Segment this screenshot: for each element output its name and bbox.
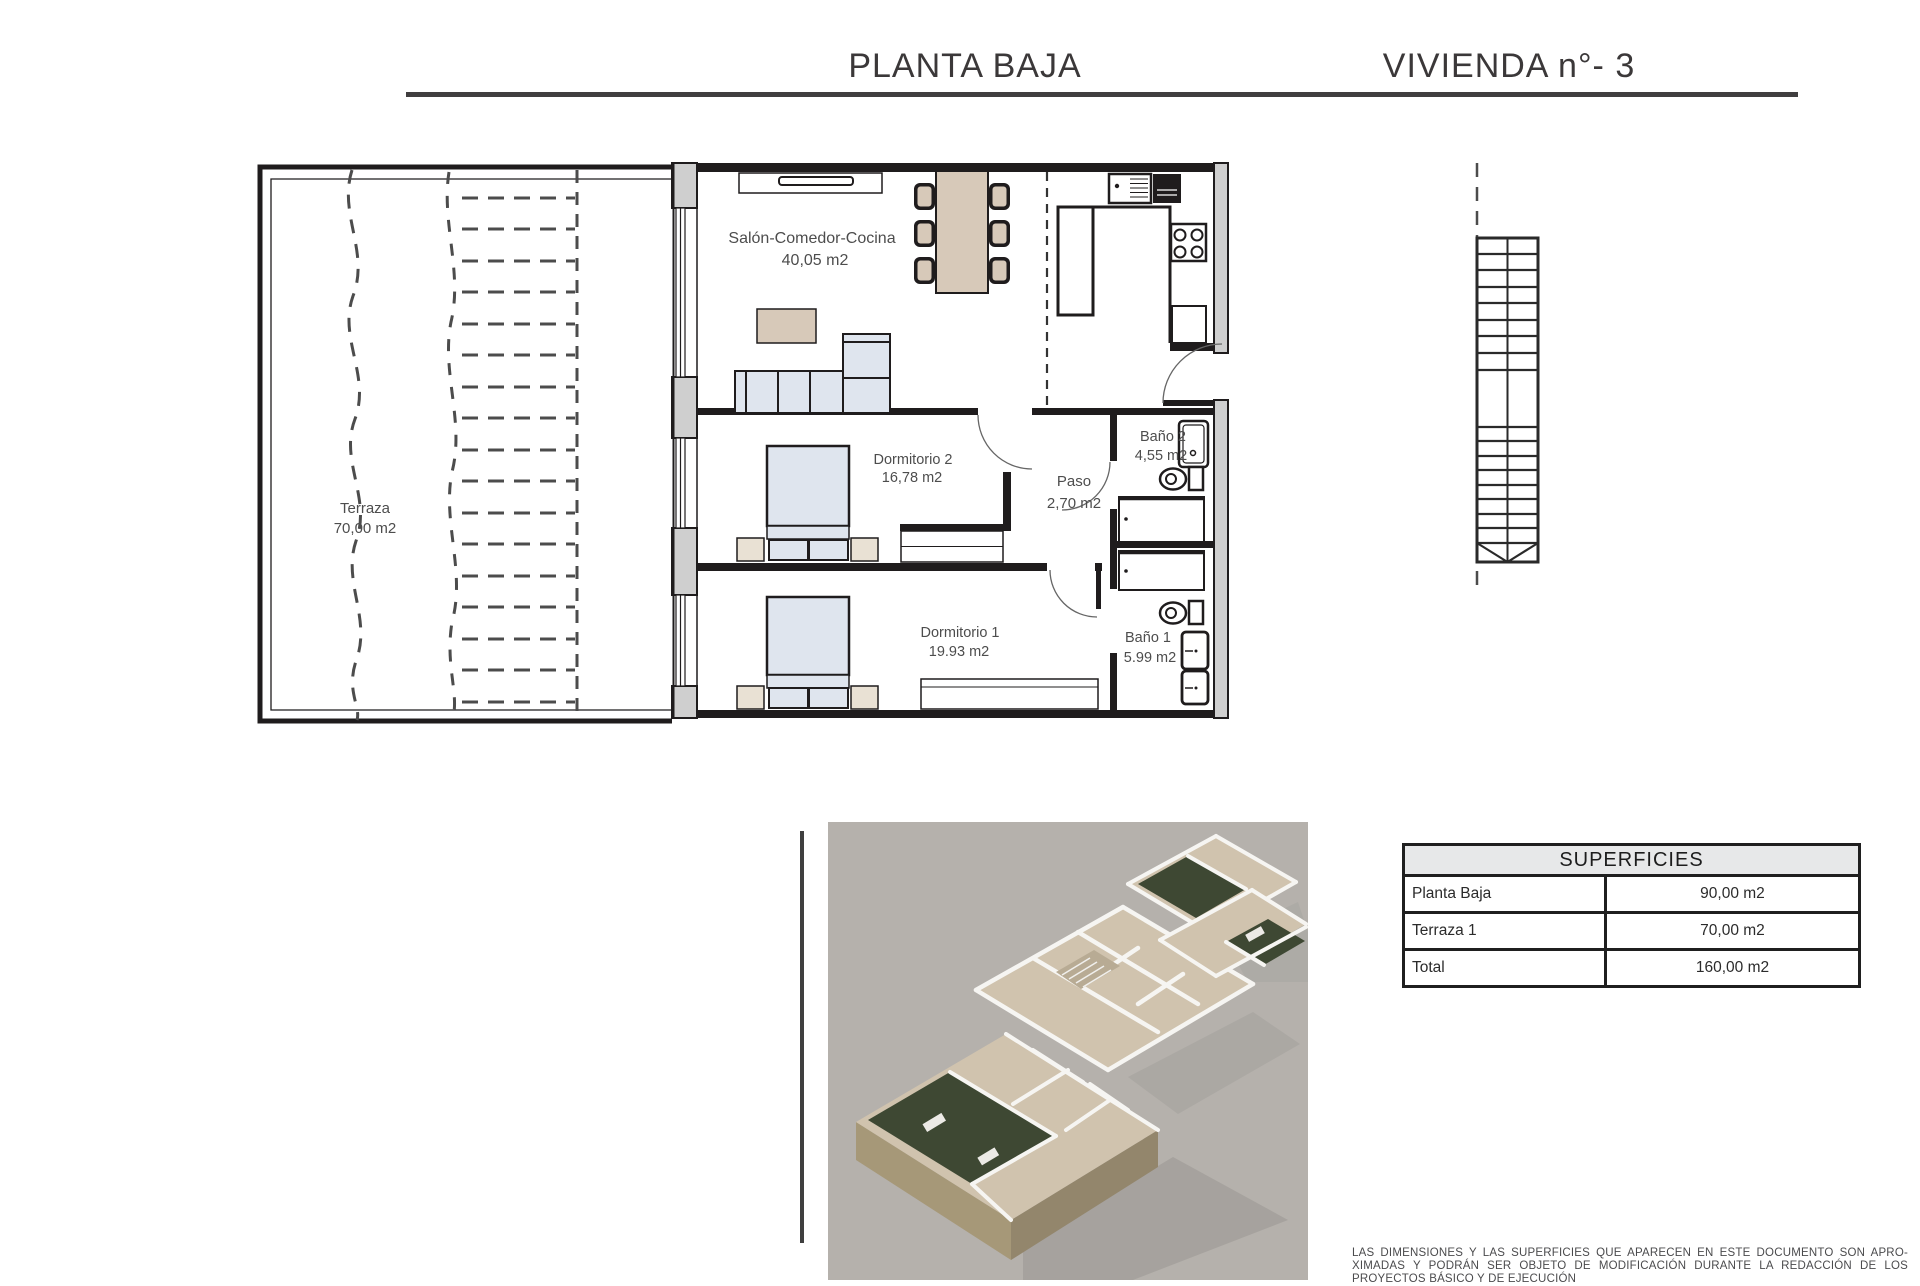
room-label-dormitorio2-name: Dormitorio 2 [874, 452, 953, 468]
room-label-terraza-area: 70,00 m2 [334, 520, 397, 537]
sofa [735, 334, 890, 413]
staircase-diagram [1477, 163, 1538, 593]
table-row-value: 70,00 m2 [1607, 914, 1858, 948]
sideboard-dormitorio1 [921, 679, 1098, 709]
room-label-terraza-name: Terraza [340, 500, 391, 517]
room-label-salon-name: Salón-Comedor-Cocina [728, 230, 895, 247]
bed-dormitorio2 [737, 446, 878, 561]
building-3d-render [828, 822, 1308, 1280]
room-label-salon-area: 40,05 m2 [782, 252, 849, 269]
superficies-table: SUPERFICIES Planta Baja 90,00 m2 Terraza… [1402, 843, 1861, 988]
table-row-label: Terraza 1 [1405, 914, 1607, 948]
disclaimer-line: XIMADAS Y PODRÁN SER OBJETO DE MODIFICAC… [1352, 1260, 1908, 1273]
room-label-dormitorio2-area: 16,78 m2 [882, 470, 942, 486]
toilet-icon [1160, 469, 1186, 490]
toilet-icon [1160, 603, 1186, 624]
kitchen-group [1047, 172, 1206, 406]
room-label-bano1-name: Baño 1 [1125, 630, 1171, 646]
room-label-paso-area: 2,70 m2 [1047, 495, 1101, 512]
table-row: Total 160,00 m2 [1405, 951, 1858, 985]
bathroom1-fixtures [1119, 551, 1208, 704]
superficies-table-title: SUPERFICIES [1405, 846, 1858, 877]
table-row: Planta Baja 90,00 m2 [1405, 877, 1858, 914]
table-row-label: Total [1405, 951, 1607, 985]
disclaimer-text: LAS DIMENSIONES Y LAS SUPERFICIES QUE AP… [1352, 1247, 1908, 1286]
room-label-bano2-area: 4,55 m2 [1135, 448, 1187, 464]
table-row-label: Planta Baja [1405, 877, 1607, 911]
table-row-value: 90,00 m2 [1607, 877, 1858, 911]
vanity-icon [1119, 551, 1204, 590]
tv-unit [739, 173, 882, 193]
render-divider-line [800, 831, 804, 1243]
room-label-dormitorio1-name: Dormitorio 1 [921, 625, 1000, 641]
dining-table [914, 171, 1010, 293]
table-row-value: 160,00 m2 [1607, 951, 1858, 985]
room-label-bano1-area: 5.99 m2 [1124, 650, 1176, 666]
room-label-paso-name: Paso [1057, 473, 1091, 490]
table-row: Terraza 1 70,00 m2 [1405, 914, 1858, 951]
disclaimer-line: LAS DIMENSIONES Y LAS SUPERFICIES QUE AP… [1352, 1247, 1908, 1260]
plan-sheet-page: { "header": { "left_title": "PLANTA BAJA… [0, 0, 1920, 1280]
room-label-bano2-name: Baño 2 [1140, 429, 1186, 445]
bed-dormitorio1 [737, 597, 878, 709]
room-label-dormitorio1-area: 19.93 m2 [929, 644, 989, 660]
terrace-pergola-dashes [348, 170, 577, 720]
wardrobe-dormitorio2 [901, 531, 1003, 562]
vanity-icon [1119, 497, 1204, 542]
window-icon [676, 208, 685, 686]
coffee-table [757, 309, 816, 343]
